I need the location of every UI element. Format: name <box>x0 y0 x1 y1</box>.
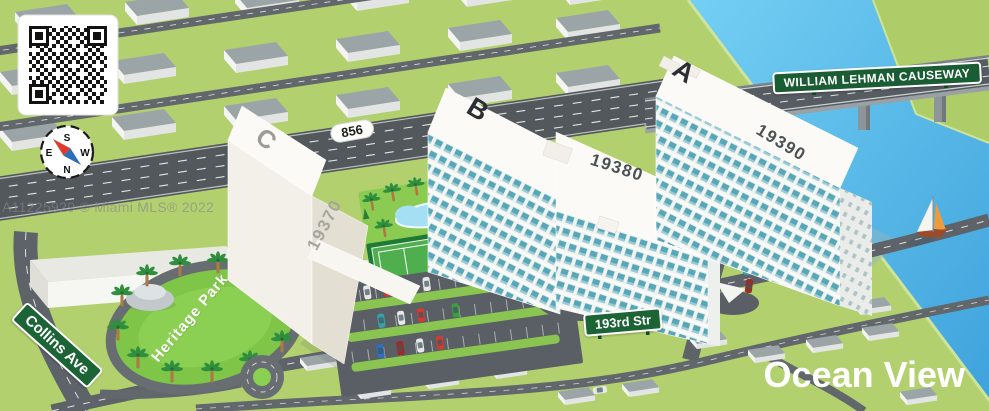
compass-east: E <box>46 148 53 159</box>
qr-code <box>18 15 118 115</box>
compass-north: N <box>63 165 70 176</box>
compass: S W N E <box>41 126 93 178</box>
ocean-view-logo: Ocean View <box>764 354 965 396</box>
compass-west: W <box>80 148 90 159</box>
compass-south: S <box>64 133 71 144</box>
roundabout <box>240 355 284 399</box>
site-map: S W N E A 19390 B 19380 C 19370 856 WILL… <box>0 0 989 411</box>
mls-watermark: A11225929 © Miami MLS® 2022 <box>2 199 214 215</box>
